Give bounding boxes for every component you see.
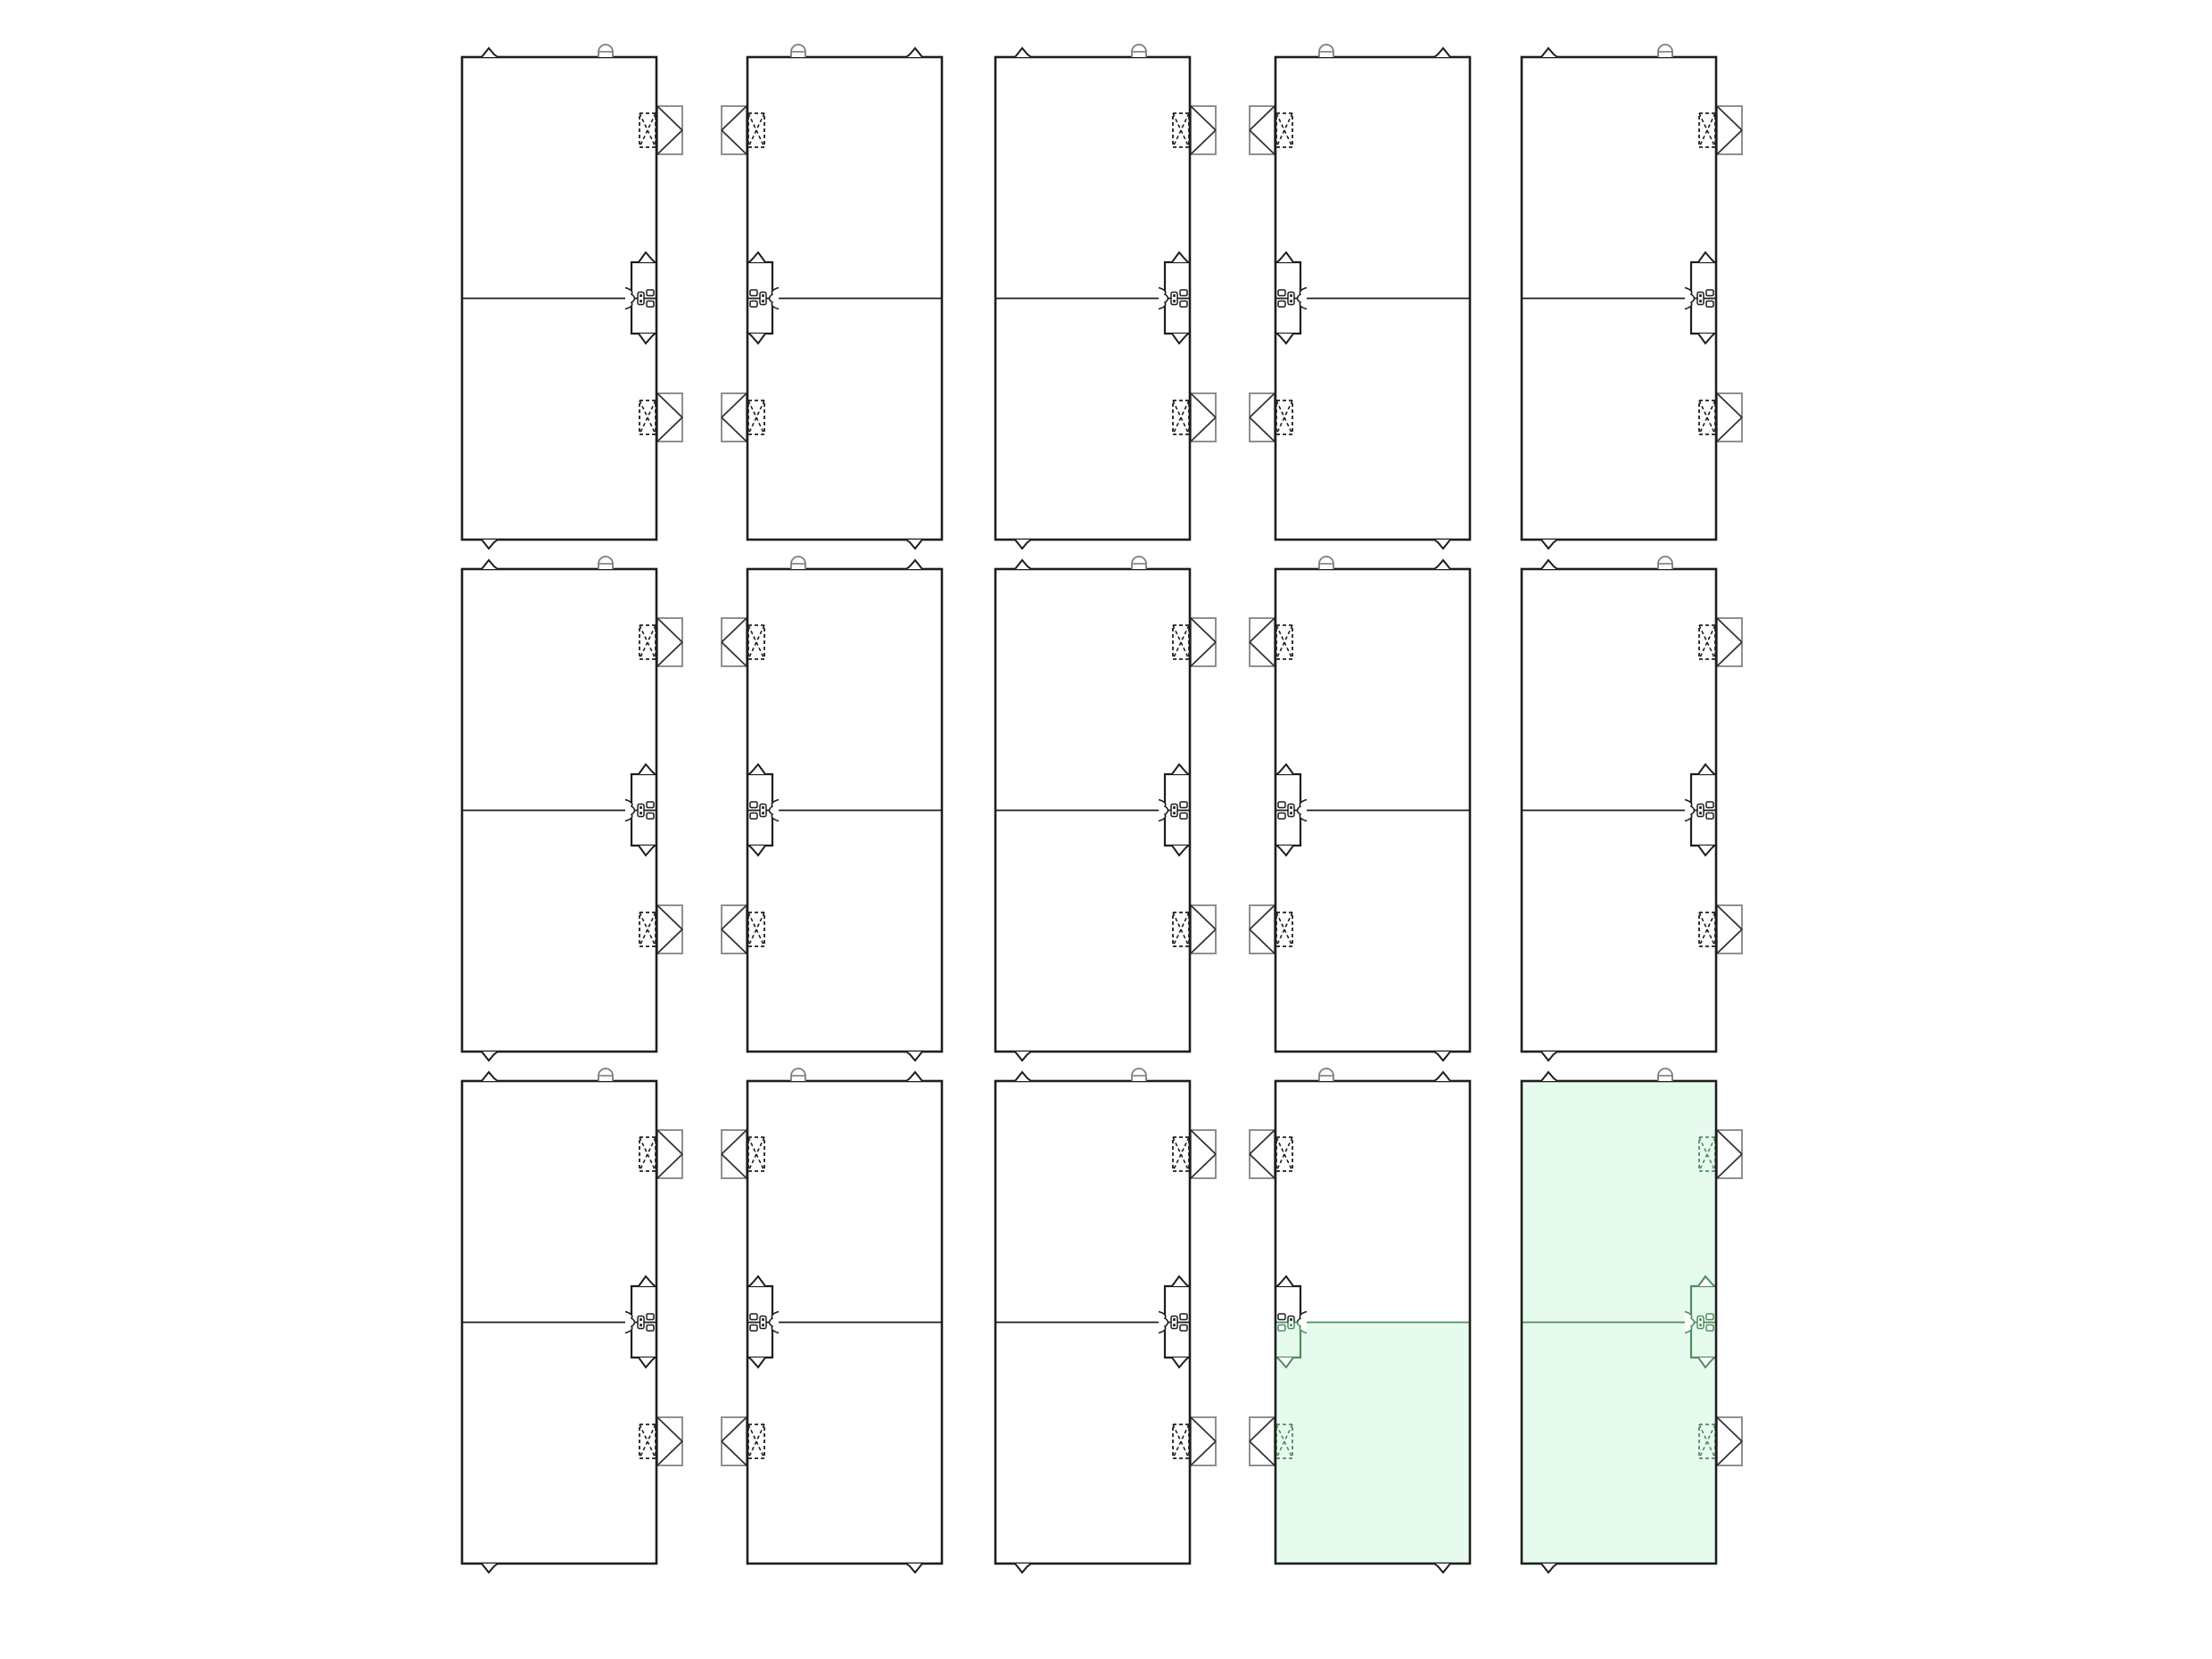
- window-swing-icon: [722, 106, 747, 154]
- unit-r1-c2: [722, 45, 942, 549]
- module-bottom[interactable]: [995, 1323, 1190, 1564]
- break-notch-icon: [482, 1564, 498, 1572]
- break-notch-icon: [1015, 540, 1031, 549]
- module-top[interactable]: [995, 57, 1190, 299]
- module-top[interactable]: [995, 569, 1190, 811]
- window-swing-icon: [1191, 1130, 1216, 1178]
- break-notch-icon: [482, 540, 498, 549]
- window-swing-icon: [722, 1417, 747, 1465]
- break-notch-icon: [1434, 540, 1450, 549]
- module-bottom[interactable]: [1522, 299, 1716, 541]
- window-swing-icon: [1717, 106, 1742, 154]
- unit-r2-c2: [722, 557, 942, 1061]
- roof-tag-icon: [1319, 45, 1333, 57]
- window-swing-icon: [1250, 393, 1275, 442]
- unit-r2-c1: [462, 557, 682, 1061]
- window-swing-icon: [1717, 1130, 1742, 1178]
- roof-tag-icon: [1132, 1069, 1146, 1081]
- roof-tag-icon: [598, 45, 613, 57]
- break-notch-icon: [906, 48, 922, 57]
- break-notch-icon: [482, 48, 498, 57]
- window-swing-icon: [1191, 393, 1216, 442]
- module-bottom[interactable]: [462, 299, 656, 541]
- window-swing-icon: [1717, 1417, 1742, 1465]
- window-swing-icon: [1250, 905, 1275, 953]
- module-top[interactable]: [995, 1081, 1190, 1323]
- break-notch-icon: [906, 540, 922, 549]
- window-swing-icon: [657, 618, 682, 666]
- roof-tag-icon: [791, 1069, 805, 1081]
- roof-tag-icon: [598, 557, 613, 569]
- break-notch-icon: [1434, 560, 1450, 569]
- unit-r2-c3: [995, 557, 1216, 1061]
- roof-tag-icon: [1132, 557, 1146, 569]
- unit-r2-c4: [1250, 557, 1470, 1061]
- window-swing-icon: [1191, 106, 1216, 154]
- window-swing-icon: [657, 106, 682, 154]
- module-bottom[interactable]: [747, 811, 942, 1052]
- window-swing-icon: [657, 393, 682, 442]
- break-notch-icon: [1015, 560, 1031, 569]
- break-notch-icon: [906, 1072, 922, 1081]
- unit-r3-c3: [995, 1069, 1216, 1572]
- break-notch-icon: [1434, 1564, 1450, 1572]
- break-notch-icon: [906, 1564, 922, 1572]
- break-notch-icon: [906, 560, 922, 569]
- window-swing-icon: [1191, 905, 1216, 953]
- break-notch-icon: [1541, 560, 1557, 569]
- unit-r1-c1: [462, 45, 682, 549]
- module-top[interactable]: [1522, 569, 1716, 811]
- window-swing-icon: [1250, 106, 1275, 154]
- break-notch-icon: [1434, 48, 1450, 57]
- break-notch-icon: [1434, 1072, 1450, 1081]
- module-bottom[interactable]: [462, 1323, 656, 1564]
- module-top[interactable]: [747, 57, 942, 299]
- unit-r2-c5: [1522, 557, 1742, 1061]
- window-swing-icon: [1717, 618, 1742, 666]
- roof-tag-icon: [1319, 557, 1333, 569]
- window-swing-icon: [722, 905, 747, 953]
- unit-r1-c5: [1522, 45, 1742, 549]
- module-bottom[interactable]: [1275, 1323, 1470, 1564]
- window-swing-icon: [1717, 905, 1742, 953]
- break-notch-icon: [482, 560, 498, 569]
- window-swing-icon: [1717, 393, 1742, 442]
- roof-tag-icon: [1658, 1069, 1672, 1081]
- roof-tag-icon: [598, 1069, 613, 1081]
- module-top[interactable]: [1522, 1081, 1716, 1323]
- window-swing-icon: [657, 1417, 682, 1465]
- roof-tag-icon: [791, 557, 805, 569]
- break-notch-icon: [1541, 1072, 1557, 1081]
- module-top[interactable]: [1275, 57, 1470, 299]
- module-top[interactable]: [1275, 1081, 1470, 1323]
- module-bottom[interactable]: [1522, 1323, 1716, 1564]
- window-swing-icon: [1250, 1417, 1275, 1465]
- unit-r3-c2: [722, 1069, 942, 1572]
- window-swing-icon: [1191, 1417, 1216, 1465]
- break-notch-icon: [482, 1052, 498, 1061]
- module-bottom[interactable]: [747, 299, 942, 541]
- unit-r1-c4: [1250, 45, 1470, 549]
- break-notch-icon: [1015, 48, 1031, 57]
- roof-tag-icon: [1658, 557, 1672, 569]
- module-bottom[interactable]: [462, 811, 656, 1052]
- break-notch-icon: [1015, 1564, 1031, 1572]
- window-swing-icon: [1250, 618, 1275, 666]
- break-notch-icon: [1541, 48, 1557, 57]
- module-bottom[interactable]: [995, 299, 1190, 541]
- break-notch-icon: [1434, 1052, 1450, 1061]
- module-bottom[interactable]: [1522, 811, 1716, 1052]
- module-bottom[interactable]: [1275, 811, 1470, 1052]
- window-swing-icon: [722, 618, 747, 666]
- break-notch-icon: [1015, 1052, 1031, 1061]
- module-top[interactable]: [462, 1081, 656, 1323]
- module-bottom[interactable]: [747, 1323, 942, 1564]
- unit-r3-c4: [1250, 1069, 1470, 1572]
- unit-r1-c3: [995, 45, 1216, 549]
- module-bottom[interactable]: [995, 811, 1190, 1052]
- roof-tag-icon: [1132, 45, 1146, 57]
- break-notch-icon: [1541, 1052, 1557, 1061]
- window-swing-icon: [722, 393, 747, 442]
- roof-tag-icon: [791, 45, 805, 57]
- roof-tag-icon: [1658, 45, 1672, 57]
- break-notch-icon: [1541, 540, 1557, 549]
- module-top[interactable]: [747, 569, 942, 811]
- module-top[interactable]: [1522, 57, 1716, 299]
- window-swing-icon: [1191, 618, 1216, 666]
- break-notch-icon: [906, 1052, 922, 1061]
- module-bottom[interactable]: [1275, 299, 1470, 541]
- break-notch-icon: [482, 1072, 498, 1081]
- floor-plan-canvas: [0, 0, 2212, 1659]
- window-swing-icon: [657, 1130, 682, 1178]
- module-top[interactable]: [1275, 569, 1470, 811]
- plan-drawing: [0, 0, 2212, 1659]
- break-notch-icon: [1541, 1564, 1557, 1572]
- unit-r3-c1: [462, 1069, 682, 1572]
- unit-r3-c5: [1522, 1069, 1742, 1572]
- module-top[interactable]: [462, 569, 656, 811]
- module-top[interactable]: [747, 1081, 942, 1323]
- window-swing-icon: [1250, 1130, 1275, 1178]
- module-top[interactable]: [462, 57, 656, 299]
- break-notch-icon: [1015, 1072, 1031, 1081]
- window-swing-icon: [657, 905, 682, 953]
- roof-tag-icon: [1319, 1069, 1333, 1081]
- window-swing-icon: [722, 1130, 747, 1178]
